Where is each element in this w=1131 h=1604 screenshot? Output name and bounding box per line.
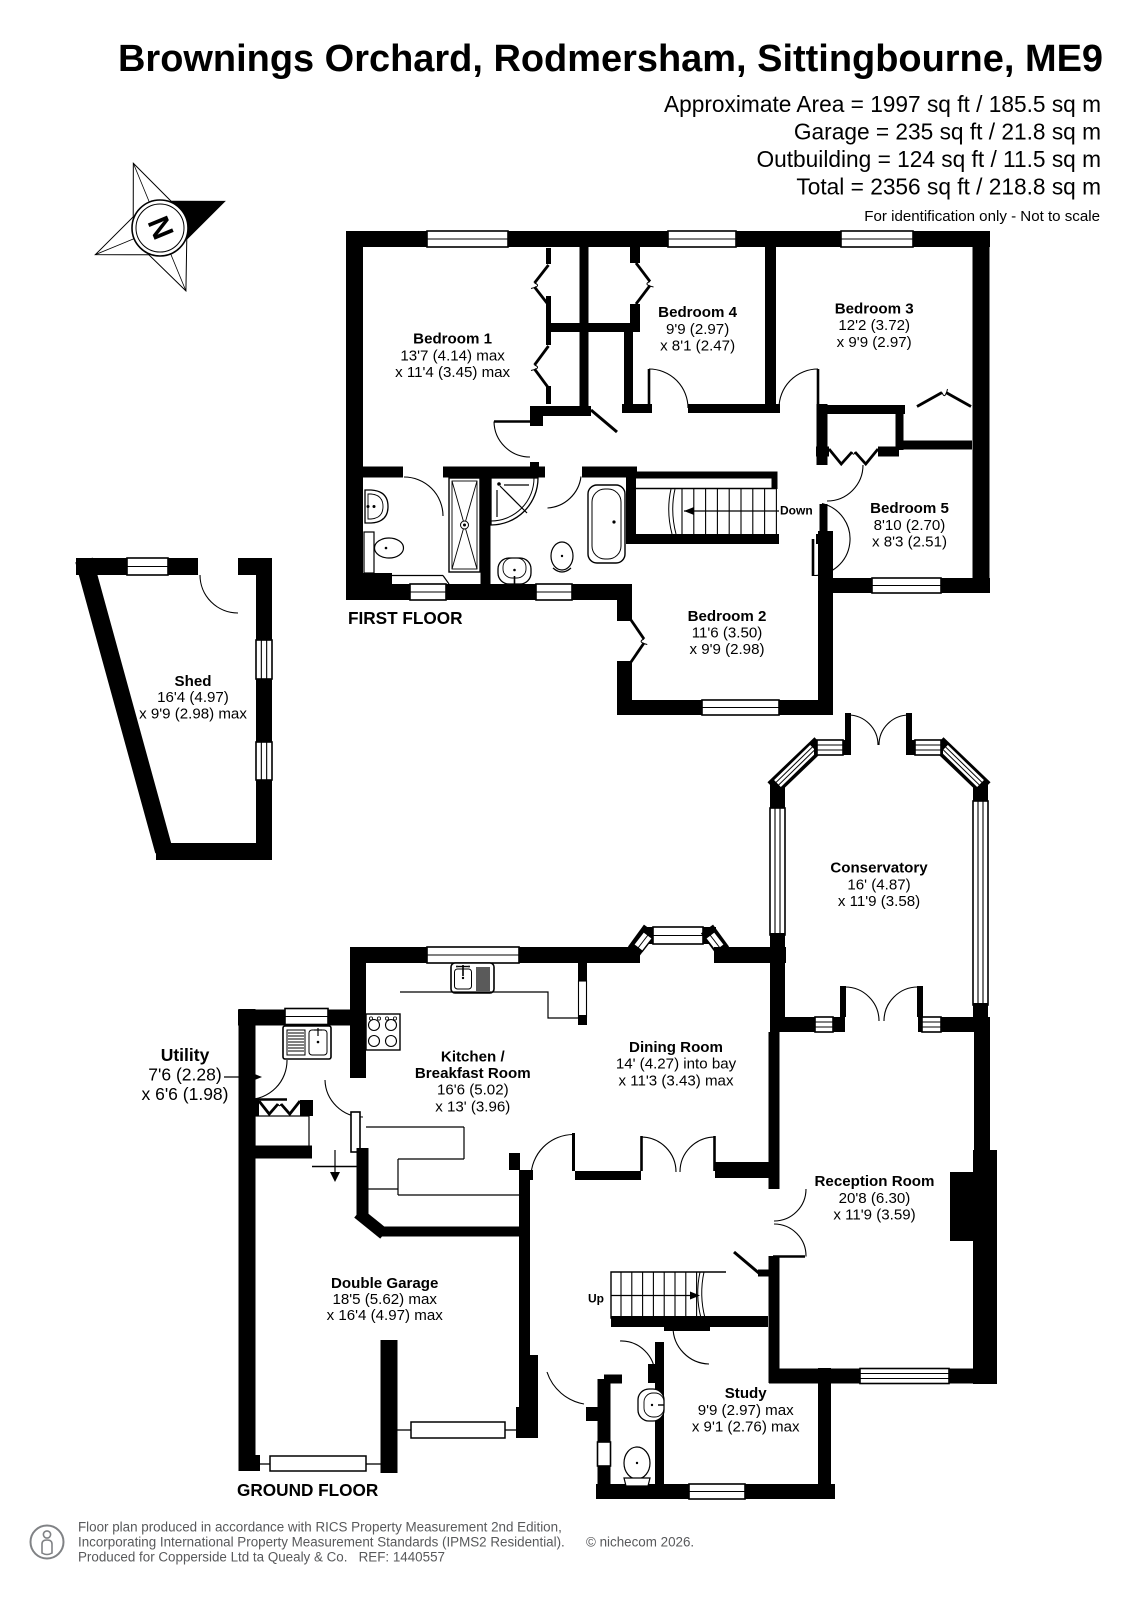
svg-text:Floor plan produced in accorda: Floor plan produced in accordance with R…: [78, 1520, 562, 1535]
svg-text:Produced for Copperside Ltd ta: Produced for Copperside Ltd ta Quealy & …: [78, 1550, 445, 1565]
svg-text:Conservatory: Conservatory: [830, 860, 928, 877]
svg-text:Brownings Orchard, Rodmersham,: Brownings Orchard, Rodmersham, Sittingbo…: [118, 38, 1103, 80]
svg-text:Utility: Utility: [161, 1045, 210, 1065]
svg-text:12'2 (3.72): 12'2 (3.72): [838, 317, 910, 334]
svg-text:Down: Down: [780, 504, 813, 518]
svg-text:Up: Up: [588, 1292, 604, 1306]
svg-text:Garage = 235 sq ft / 21.8 sq m: Garage = 235 sq ft / 21.8 sq m: [794, 119, 1101, 145]
svg-text:Bedroom 3: Bedroom 3: [835, 301, 914, 318]
svg-text:Bedroom 2: Bedroom 2: [688, 608, 767, 625]
svg-text:x 6'6 (1.98): x 6'6 (1.98): [142, 1084, 229, 1104]
svg-text:Double Garage: Double Garage: [331, 1275, 438, 1292]
svg-text:20'8 (6.30): 20'8 (6.30): [839, 1190, 911, 1207]
svg-text:Bedroom 1: Bedroom 1: [413, 331, 492, 348]
svg-text:Total = 2356 sq ft / 218.8 sq: Total = 2356 sq ft / 218.8 sq m: [796, 173, 1101, 199]
svg-text:x 9'9 (2.98): x 9'9 (2.98): [689, 641, 764, 658]
svg-text:Breakfast Room: Breakfast Room: [415, 1065, 531, 1082]
svg-text:Reception Room: Reception Room: [815, 1173, 935, 1190]
svg-text:13'7 (4.14) max: 13'7 (4.14) max: [400, 347, 505, 364]
svg-text:9'9 (2.97) max: 9'9 (2.97) max: [698, 1402, 794, 1419]
svg-text:16' (4.87): 16' (4.87): [847, 876, 910, 893]
svg-text:x 9'9 (2.97): x 9'9 (2.97): [837, 334, 912, 351]
svg-text:x 11'9 (3.59): x 11'9 (3.59): [833, 1207, 915, 1224]
svg-text:For identification only - Not: For identification only - Not to scale: [864, 208, 1100, 225]
svg-text:16'4 (4.97): 16'4 (4.97): [157, 689, 229, 706]
svg-text:Approximate Area = 1997 sq ft: Approximate Area = 1997 sq ft / 185.5 sq…: [664, 91, 1101, 117]
svg-text:Incorporating International Pr: Incorporating International Property Mea…: [78, 1535, 565, 1550]
svg-text:x 9'1 (2.76) max: x 9'1 (2.76) max: [692, 1419, 800, 1436]
svg-text:9'9 (2.97): 9'9 (2.97): [666, 321, 729, 338]
svg-text:x 16'4 (4.97) max: x 16'4 (4.97) max: [327, 1307, 444, 1324]
svg-text:Bedroom 5: Bedroom 5: [870, 500, 949, 517]
svg-text:© nichecom 2026.: © nichecom 2026.: [586, 1535, 694, 1550]
svg-text:GROUND FLOOR: GROUND FLOOR: [237, 1480, 379, 1500]
svg-text:x 11'3 (3.43) max: x 11'3 (3.43) max: [618, 1072, 733, 1089]
svg-text:11'6 (3.50): 11'6 (3.50): [692, 625, 763, 642]
svg-text:FIRST FLOOR: FIRST FLOOR: [348, 608, 463, 628]
svg-text:Shed: Shed: [175, 673, 212, 690]
svg-text:16'6 (5.02): 16'6 (5.02): [437, 1082, 509, 1099]
svg-text:Dining Room: Dining Room: [629, 1039, 723, 1056]
svg-text:14' (4.27) into bay: 14' (4.27) into bay: [616, 1056, 737, 1073]
svg-text:x 11'4 (3.45) max: x 11'4 (3.45) max: [395, 364, 510, 381]
svg-text:18'5 (5.62) max: 18'5 (5.62) max: [332, 1291, 437, 1308]
svg-text:7'6 (2.28): 7'6 (2.28): [148, 1065, 221, 1085]
svg-text:8'10 (2.70): 8'10 (2.70): [874, 517, 946, 534]
svg-text:x 8'3 (2.51): x 8'3 (2.51): [872, 534, 947, 551]
svg-text:x 8'1 (2.47): x 8'1 (2.47): [660, 338, 735, 355]
svg-text:x 13' (3.96): x 13' (3.96): [435, 1098, 510, 1115]
svg-text:x 11'9 (3.58): x 11'9 (3.58): [838, 893, 920, 910]
svg-text:x 9'9 (2.98) max: x 9'9 (2.98) max: [139, 705, 247, 722]
svg-text:Kitchen /: Kitchen /: [441, 1048, 506, 1065]
svg-text:Outbuilding = 124 sq ft / 11.5: Outbuilding = 124 sq ft / 11.5 sq m: [756, 146, 1101, 172]
svg-text:Bedroom 4: Bedroom 4: [658, 304, 737, 321]
svg-text:Study: Study: [725, 1385, 768, 1402]
